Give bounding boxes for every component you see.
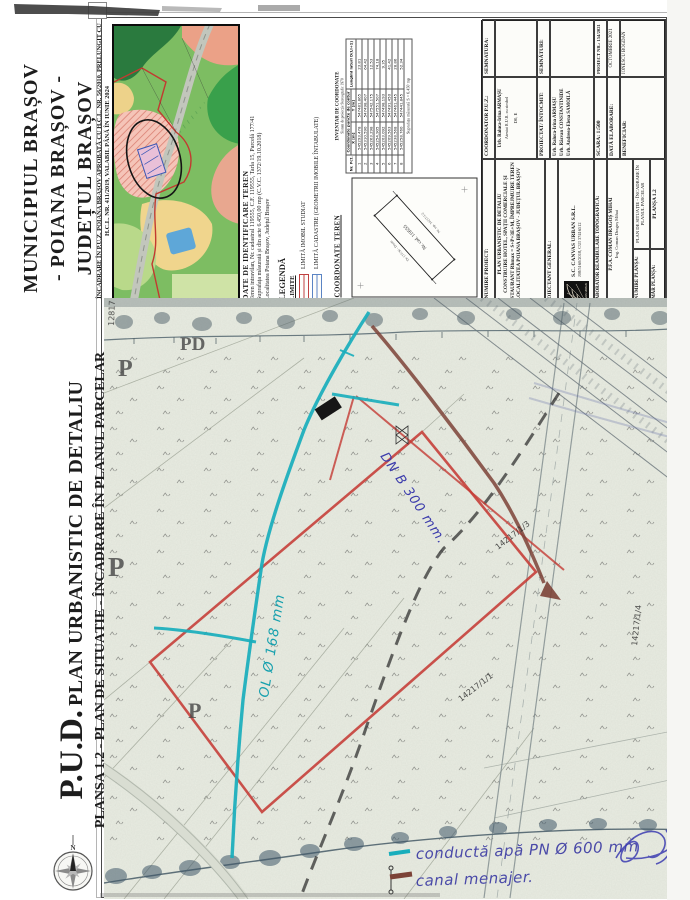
proiectant-general-label: PROIECTANT GENERAL: xyxy=(545,159,558,309)
project-title-cell: PLAN URBANISTIC DE DETALIUCONSTRUIRE HOT… xyxy=(495,159,545,309)
zone-letter-p1: P xyxy=(118,356,133,382)
municipality-title-line: MUNICIPIUL BRAȘOV xyxy=(18,56,45,301)
incadrare-line2: H.C.L. NR. 411/2019, VALABIL PÂNĂ ÎN IUN… xyxy=(104,22,112,300)
beneficiar-value: IONESCU BOGDAN xyxy=(620,19,666,77)
coordonator-simbol: D0, E xyxy=(513,80,518,156)
coordinate-row: 8545258.760547441.84552.34 xyxy=(398,39,404,173)
project-title-line: CONSTRUIRE HOTEL, SPAȚII COMERCIALE ȘI R… xyxy=(503,162,516,306)
proiect-nr-cell: PROIECT NR.: 154/2021 xyxy=(594,19,607,77)
beneficiar-label: BENEFICIAR: xyxy=(620,77,666,159)
sketch-edge-label-bottom: Nr. top. 14217/1/2 xyxy=(420,211,441,233)
main-map: P PD P P 14217/1/3 14217/1/4 14217/1/1 1… xyxy=(104,298,688,899)
coordinates-panel-title: COORDONATE TEREN xyxy=(334,215,342,298)
pud-title-line: P.U.D. PLAN URBANISTIC DE DETALIU xyxy=(54,305,91,875)
municipality-title: MUNICIPIUL BRAȘOV- POIANA BRAȘOV -JUDEȚU… xyxy=(18,56,100,301)
scanned-plan-sheet: MUNICIPIUL BRAȘOV- POIANA BRAȘOV -JUDEȚU… xyxy=(0,0,690,900)
col-header-d: Lungimi laturi D(i,i+1) xyxy=(346,39,356,89)
scan-edge-bottom xyxy=(100,893,440,897)
data-elaborare-value: OCTOMBRIE 2021 xyxy=(607,19,620,77)
signature-space-1 xyxy=(495,19,537,77)
incadrare-line1: ÎNCADRARE ÎN P.U.Z. POIANA BRAȘOV APROBA… xyxy=(96,22,104,300)
parcel-number-4: 12817 xyxy=(107,300,117,326)
legend-subtitle: LIMITE xyxy=(289,22,296,300)
proiectat-name: Urb. Andreea-Elena SAMOILĂ xyxy=(566,80,573,156)
denumire-proiect-label: DENUMIRE PROIECT: xyxy=(482,159,495,309)
coordonator-label: COORDONATOR P.U.Z.: xyxy=(482,77,495,159)
municipality-title-line: JUDEȚUL BRAȘOV xyxy=(72,56,99,301)
coordinate-table-subtitle: Sistem de proiecție Stereografic 1970 xyxy=(341,39,345,174)
identification-title: DATE DE IDENTIFICARE TEREN xyxy=(241,22,250,300)
pud-acronym: P.U.D. xyxy=(54,710,90,800)
zone-letter-p3: P xyxy=(188,698,201,723)
legend-dash-canal xyxy=(390,874,412,877)
pud-title-block: P.U.D. PLAN URBANISTIC DE DETALIU PLANȘA… xyxy=(54,305,106,875)
coordonator-cell: Urb. Raluca-Irina ARMAȘU Atestat R.U.R. … xyxy=(495,77,537,159)
coordinate-table: Nr. Pct. Coordonate puncte de contur Lun… xyxy=(346,39,405,174)
parcel-sketch: Nr. cad. 119555 De 177/30 - Drum Nr. top… xyxy=(352,178,478,298)
scan-artifacts-top xyxy=(10,1,320,21)
zone-letter-p2: P xyxy=(108,552,125,582)
proiectat-names-cell: Urb. Raluca-Irina ARMAȘUUrb. Răzvan CONS… xyxy=(550,77,594,159)
company-name: S.C. CANVAS URBAN S.R.L. xyxy=(571,205,577,277)
legend-item-cadastre: LIMITĂ CADASTRE (GEOMETRII IMOBILE ÎNTAB… xyxy=(312,22,322,300)
legend-swatch-blue xyxy=(312,274,322,300)
coordinate-table-box: INVENTAR DE COORDONATE Sistem de proiecț… xyxy=(336,39,413,174)
signature-space-2 xyxy=(550,19,594,77)
sketch-center-label: Nr. cad. 119555 xyxy=(403,223,428,250)
semnaturi-label: SEMNĂTURI: xyxy=(537,19,550,77)
legend-item-imobil: LIMITĂ IMOBIL STUDIAT xyxy=(299,22,309,300)
plansa-number: PLANȘA 1.2 xyxy=(650,159,666,249)
legend-swatch-red xyxy=(299,274,309,300)
data-elaborare-label: DATĂ ELABORARE: xyxy=(607,77,620,159)
coordonator-name: Urb. Raluca-Irina ARMAȘU xyxy=(497,80,504,156)
compass-north-label: N xyxy=(70,844,75,852)
title-block: DENUMIRE PROIECT: PLAN URBANISTIC DE DET… xyxy=(481,20,665,310)
elaborator-cell: P.F.A. COMAN DRAGOȘ MIHAI Ing. Coman Dra… xyxy=(607,159,633,309)
zone-letter-pd: PD xyxy=(180,334,205,355)
col-header-group: Coordonate puncte de contur xyxy=(346,89,351,154)
municipality-title-line: - POIANA BRAȘOV - xyxy=(45,56,72,301)
identification-line: Suprafața măsurată și din acte 6.450,00 … xyxy=(257,22,264,300)
company-registration: J08/5160/2018, CUI 37416512 xyxy=(577,205,582,277)
proiectat-label: PROIECTAT/ ÎNTOCMIT: xyxy=(537,77,550,159)
elaborator-label: ELABORATOR REAMBULARE TOPOGRAFICĂ: xyxy=(594,159,607,309)
legend-item-label: LIMITĂ IMOBIL STUDIAT xyxy=(301,201,307,269)
semnatura-label-1: SEMNATURA: xyxy=(482,19,495,77)
plansa-name: PLAN DE SITUAȚIE - ÎNCADRARE ÎN PLANUL P… xyxy=(633,159,650,249)
coordonator-atestat: Atestat R.U.R. cu simbol xyxy=(504,80,509,156)
identification-line: Localitatea Poiana Brașov, Județul Brașo… xyxy=(265,22,272,300)
zoning-inset-map xyxy=(112,24,240,300)
scara-cell: SCARA: 1:500 xyxy=(594,77,607,159)
compass-rose-icon: N xyxy=(50,833,96,895)
scan-smudge-dark xyxy=(14,4,160,16)
pud-title: PLAN URBANISTIC DE DETALIU xyxy=(65,381,87,706)
incadrare-note: ÎNCADRARE ÎN P.U.Z. POIANA BRAȘOV APROBA… xyxy=(96,22,112,300)
scan-edge-right xyxy=(667,0,690,900)
company-cell: CANVAS URBAN S.C. CANVAS URBAN S.R.L. J0… xyxy=(558,159,594,309)
col-header-pct: Nr. Pct. xyxy=(346,155,356,173)
identification-block: DATE DE IDENTIFICARE TEREN Teren intravi… xyxy=(241,22,333,300)
scan-smudge-light xyxy=(162,6,222,12)
legend-title: LEGENDĂ xyxy=(277,22,287,300)
elaborator-engineer: Ing. Coman Dragoș Mihai xyxy=(614,162,619,306)
coordinate-table-footer: Suprafața măsurată S = 6.450 mp xyxy=(405,39,413,174)
coordinates-panel: COORDONATE TEREN INVENTAR DE COORDONATE … xyxy=(334,37,479,300)
proiectat-name: Urb. Raluca-Irina ARMAȘU xyxy=(552,80,559,156)
legend-item-label: LIMITĂ CADASTRE (GEOMETRII IMOBILE ÎNTAB… xyxy=(314,117,320,269)
proiectat-name: Urb. Răzvan CONSTANTINIDE xyxy=(559,80,566,156)
scan-smudge-small xyxy=(258,5,300,11)
project-title-line: LOCALITATEA POIANA BRAȘOV - JUDEȚUL BRAȘ… xyxy=(516,162,522,306)
